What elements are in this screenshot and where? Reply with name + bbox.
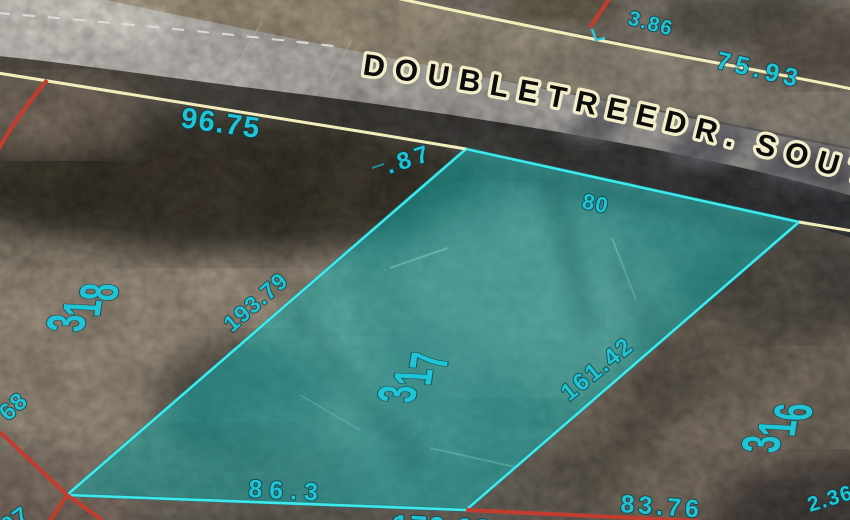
svg-text:86.3: 86.3	[248, 475, 326, 507]
svg-text:83.76: 83.76	[620, 490, 704, 520]
svg-text:3: 3	[367, 384, 429, 404]
svg-text:7: 7	[399, 351, 461, 371]
svg-text:8: 8	[69, 282, 131, 302]
svg-text:6: 6	[763, 402, 825, 422]
